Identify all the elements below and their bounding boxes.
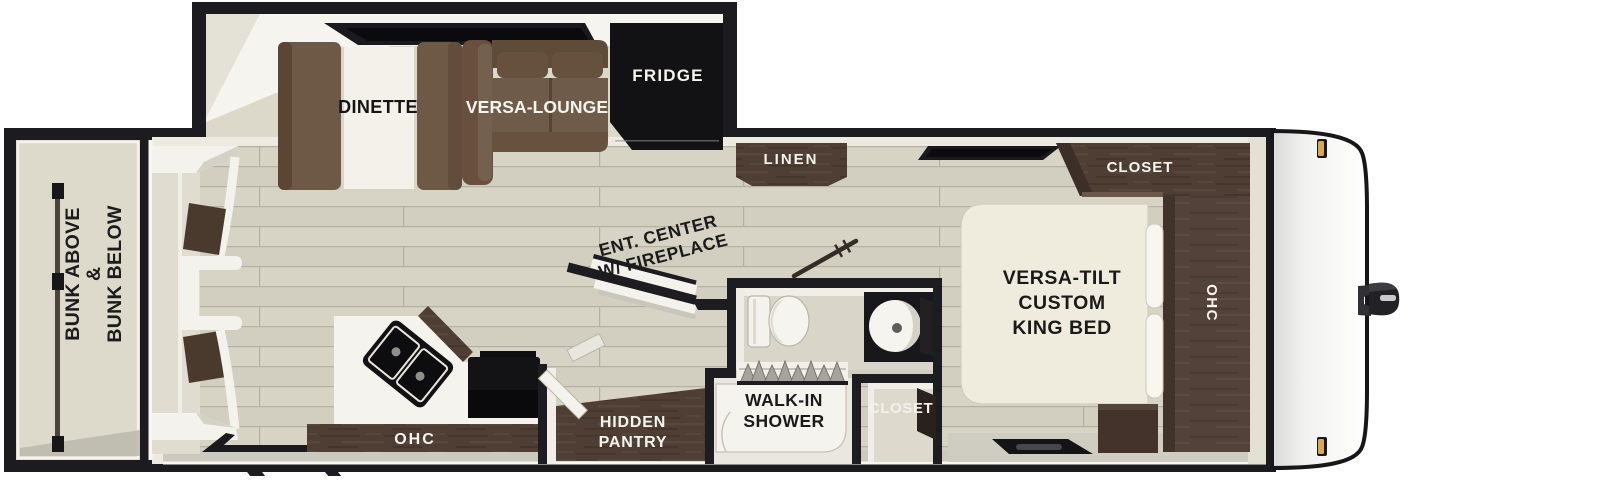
svg-text:SHOWER: SHOWER [743, 411, 824, 431]
svg-text:CUSTOM: CUSTOM [1018, 292, 1105, 314]
svg-text:CLOSET: CLOSET [869, 400, 933, 417]
svg-text:DINETTE: DINETTE [338, 97, 418, 117]
svg-text:PANTRY: PANTRY [599, 434, 668, 451]
svg-text:OHC: OHC [394, 431, 436, 448]
svg-text:FRIDGE: FRIDGE [632, 66, 703, 85]
svg-text:LINEN: LINEN [764, 151, 819, 168]
svg-text:CLOSET: CLOSET [1107, 159, 1174, 176]
svg-text:BUNK BELOW: BUNK BELOW [104, 205, 126, 343]
svg-text:KING BED: KING BED [1012, 317, 1111, 339]
svg-text:&: & [83, 267, 105, 281]
svg-text:HIDDEN: HIDDEN [600, 414, 666, 431]
svg-text:BUNK ABOVE: BUNK ABOVE [62, 207, 84, 340]
svg-text:VERSA-LOUNGE: VERSA-LOUNGE [466, 97, 608, 117]
svg-text:OHC: OHC [1203, 284, 1220, 322]
svg-text:VERSA-TILT: VERSA-TILT [1003, 267, 1121, 289]
svg-text:WALK-IN: WALK-IN [745, 390, 823, 410]
